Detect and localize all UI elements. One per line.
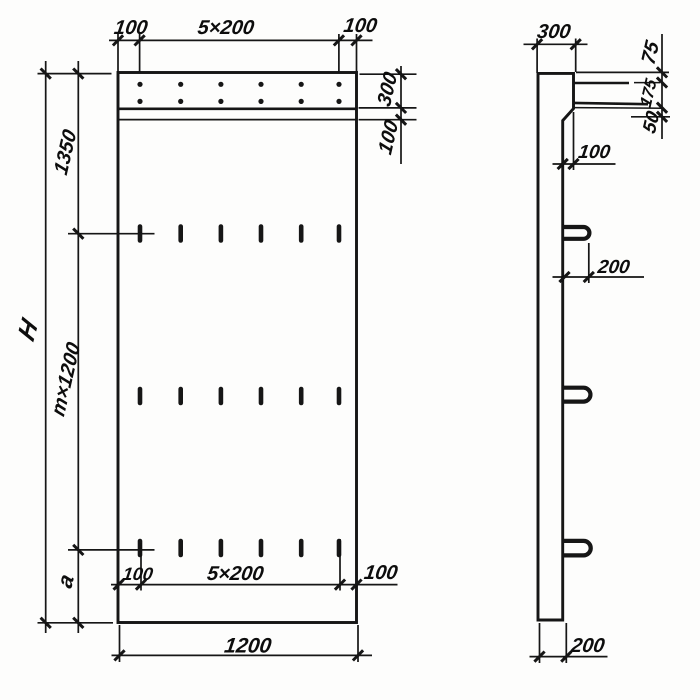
svg-text:75: 75 [638,37,664,67]
svg-text:200: 200 [595,257,631,278]
svg-text:1350: 1350 [51,127,82,178]
svg-text:100: 100 [342,15,378,37]
svg-text:100: 100 [375,117,403,157]
svg-text:5×200: 5×200 [196,17,255,39]
svg-text:100: 100 [113,17,149,39]
svg-text:100: 100 [577,142,612,163]
svg-text:a: a [52,570,78,591]
svg-text:100: 100 [363,562,399,584]
svg-text:H: H [14,314,44,346]
svg-text:200: 200 [569,635,606,657]
svg-text:100: 100 [121,564,154,584]
svg-text:50: 50 [640,108,665,137]
svg-text:1200: 1200 [223,635,273,658]
svg-text:5×200: 5×200 [206,563,265,585]
svg-text:300: 300 [536,21,572,43]
svg-text:m×1200: m×1200 [48,339,85,419]
